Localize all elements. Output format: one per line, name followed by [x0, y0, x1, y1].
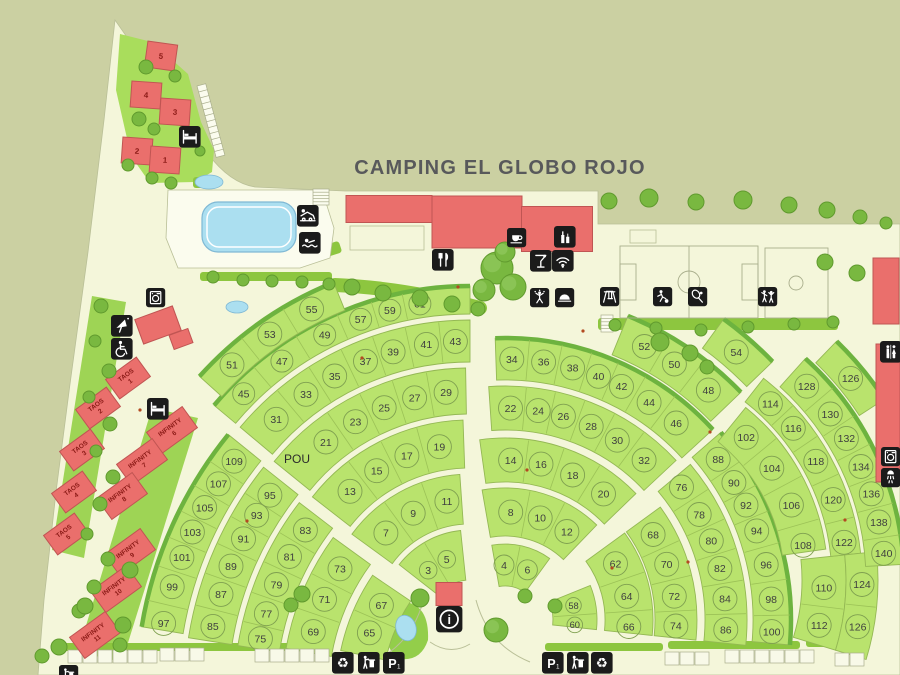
tree: [115, 617, 131, 633]
tree: [101, 552, 115, 566]
svg-text:97: 97: [158, 618, 170, 630]
svg-text:134: 134: [852, 461, 870, 473]
parking-stalls: [160, 648, 204, 661]
tree: [344, 279, 360, 295]
svg-text:19: 19: [434, 442, 446, 454]
tree: [781, 197, 797, 213]
svg-text:22: 22: [505, 403, 517, 415]
svg-text:9: 9: [410, 508, 416, 520]
tree: [375, 285, 391, 301]
marker-dot: [708, 430, 711, 433]
svg-text:73: 73: [334, 564, 346, 576]
svg-text:72: 72: [668, 591, 680, 603]
svg-text:23: 23: [350, 417, 362, 429]
svg-text:92: 92: [740, 500, 752, 512]
svg-text:36: 36: [538, 357, 550, 369]
svg-text:43: 43: [450, 336, 462, 348]
tree: [742, 321, 754, 333]
tree: [601, 193, 617, 209]
waste-corner-icon: [59, 665, 78, 675]
svg-text:17: 17: [401, 451, 413, 463]
svg-text:30: 30: [611, 435, 623, 447]
svg-text:80: 80: [705, 536, 717, 548]
svg-text:7: 7: [383, 528, 389, 540]
svg-text:10: 10: [534, 513, 546, 525]
recycling-east-icon: ♻: [591, 652, 613, 674]
svg-text:55: 55: [306, 304, 318, 316]
svg-text:38: 38: [567, 363, 579, 375]
waste-west-icon: [358, 652, 380, 674]
svg-text:98: 98: [765, 594, 777, 606]
tree: [412, 290, 428, 306]
svg-text:75: 75: [255, 634, 267, 646]
campsite-map: 5311971917151329272523214341393735333161…: [0, 0, 900, 675]
svg-text:26: 26: [558, 411, 570, 423]
tree: [849, 265, 865, 281]
marker-dot: [360, 356, 363, 359]
bungalow-3: 3: [159, 98, 191, 126]
svg-text:102: 102: [737, 432, 755, 444]
football-icon: [653, 287, 672, 306]
svg-text:41: 41: [421, 339, 433, 351]
wc-icon: [880, 341, 900, 363]
svg-text:4: 4: [501, 560, 507, 572]
svg-text:i: i: [447, 613, 451, 627]
svg-text:96: 96: [760, 559, 772, 571]
svg-text:68: 68: [647, 529, 659, 541]
svg-text:32: 32: [638, 455, 650, 467]
svg-text:6: 6: [524, 565, 530, 577]
svg-text:105: 105: [196, 502, 214, 514]
cafe-icon: [507, 228, 526, 247]
svg-text:90: 90: [728, 477, 740, 489]
svg-text:128: 128: [798, 381, 816, 393]
svg-text:70: 70: [661, 559, 673, 571]
parking-east-icon: P1: [542, 652, 564, 674]
pitch-block: [793, 555, 846, 650]
svg-text:13: 13: [344, 486, 356, 498]
tree: [471, 302, 485, 316]
svg-text:126: 126: [849, 621, 867, 633]
svg-text:35: 35: [329, 371, 341, 383]
tree: [113, 638, 127, 652]
svg-text:71: 71: [319, 594, 331, 606]
tree: [90, 445, 102, 457]
svg-text:64: 64: [621, 591, 633, 603]
tree: [609, 319, 621, 331]
svg-text:103: 103: [184, 527, 202, 539]
svg-text:88: 88: [712, 454, 724, 466]
svg-text:28: 28: [585, 421, 597, 433]
tree: [518, 589, 532, 603]
svg-text:♻: ♻: [337, 655, 349, 670]
tree: [35, 649, 49, 663]
waste-east-icon: [567, 652, 589, 674]
svg-text:106: 106: [783, 500, 801, 512]
tree: [122, 562, 138, 578]
tree: [853, 210, 867, 224]
marker-dot: [610, 566, 613, 569]
tree: [548, 599, 562, 613]
information-icon: i: [436, 606, 462, 632]
tree: [146, 172, 158, 184]
tree: [94, 299, 108, 313]
svg-text:42: 42: [616, 381, 628, 393]
recycling-west-icon: ♻: [332, 652, 354, 674]
laundry-icon: [146, 288, 165, 307]
svg-text:89: 89: [225, 561, 237, 573]
svg-text:57: 57: [355, 314, 367, 326]
svg-text:116: 116: [785, 423, 802, 435]
svg-text:39: 39: [387, 347, 399, 359]
svg-text:49: 49: [319, 330, 331, 342]
svg-text:29: 29: [440, 387, 452, 399]
svg-text:P: P: [547, 657, 555, 671]
tree: [500, 274, 526, 300]
marker-dot: [138, 408, 141, 411]
swimming-pool: [202, 202, 296, 252]
svg-text:45: 45: [238, 389, 250, 401]
tree: [640, 189, 658, 207]
svg-text:118: 118: [807, 456, 824, 468]
svg-text:78: 78: [693, 509, 705, 521]
dormitory-icon: [147, 398, 169, 420]
svg-text:25: 25: [378, 403, 390, 415]
svg-text:69: 69: [307, 626, 319, 638]
svg-text:108: 108: [794, 540, 812, 552]
hedge: [545, 643, 663, 651]
svg-text:110: 110: [816, 582, 833, 594]
svg-text:81: 81: [284, 551, 296, 563]
svg-text:44: 44: [643, 397, 655, 409]
tree: [207, 271, 219, 283]
tree: [106, 470, 120, 484]
svg-text:130: 130: [822, 409, 840, 421]
svg-text:99: 99: [166, 582, 178, 594]
svg-text:53: 53: [264, 329, 276, 341]
svg-text:14: 14: [505, 455, 517, 467]
svg-text:27: 27: [409, 393, 421, 405]
svg-text:114: 114: [762, 399, 779, 411]
svg-text:112: 112: [811, 620, 828, 632]
tree: [102, 364, 116, 378]
marker-dot: [843, 518, 846, 521]
restaurant-icon: [432, 249, 454, 271]
tree: [788, 318, 800, 330]
page-title: CAMPING EL GLOBO ROJO: [340, 157, 660, 180]
swimming-icon: [299, 232, 321, 254]
svg-text:46: 46: [670, 418, 682, 430]
tree: [237, 274, 249, 286]
pou-label: POU: [284, 452, 310, 466]
svg-text:140: 140: [875, 548, 893, 560]
tree: [650, 322, 662, 334]
svg-text:107: 107: [210, 479, 228, 491]
tennis-icon: [688, 287, 707, 306]
svg-text:P: P: [388, 657, 396, 671]
svg-text:101: 101: [173, 552, 191, 564]
svg-text:104: 104: [763, 463, 781, 475]
pond: [226, 301, 248, 313]
svg-text:77: 77: [261, 609, 273, 621]
svg-text:136: 136: [863, 489, 881, 501]
bungalow-4: 4: [130, 81, 162, 109]
svg-text:5: 5: [444, 554, 450, 566]
stairs: [313, 189, 329, 205]
tree: [473, 279, 495, 301]
svg-text:47: 47: [276, 356, 288, 368]
tree: [165, 177, 177, 189]
tree: [695, 324, 707, 336]
playground-icon: [600, 287, 619, 306]
svg-text:66: 66: [623, 621, 635, 633]
tree: [296, 276, 308, 288]
svg-text:76: 76: [676, 482, 688, 494]
tree: [132, 112, 146, 126]
tree: [266, 275, 278, 287]
svg-text:122: 122: [835, 537, 853, 549]
parking-west-icon: P1: [383, 652, 405, 674]
pond: [195, 175, 223, 189]
tree: [103, 417, 117, 431]
svg-text:58: 58: [568, 601, 578, 611]
marker-dot: [525, 468, 528, 471]
svg-text:40: 40: [593, 371, 605, 383]
tree: [734, 191, 752, 209]
svg-text:15: 15: [371, 466, 383, 478]
svg-text:93: 93: [251, 510, 263, 522]
svg-text:86: 86: [720, 624, 732, 636]
svg-text:33: 33: [300, 389, 312, 401]
tree: [651, 333, 669, 351]
svg-text:65: 65: [364, 628, 376, 640]
bar-icon: [530, 250, 552, 272]
tree: [51, 639, 67, 655]
svg-text:54: 54: [730, 347, 742, 359]
svg-text:109: 109: [225, 456, 243, 468]
tree: [81, 528, 93, 540]
svg-text:11: 11: [441, 496, 452, 508]
bungalow-1: 1: [149, 146, 181, 174]
parking-stalls: [665, 652, 709, 665]
parking-stalls: [255, 649, 329, 662]
marker-dot: [245, 519, 248, 522]
tree: [819, 202, 835, 218]
bunkhouse-icon: [179, 126, 201, 148]
satellite-tv-icon: [111, 315, 133, 337]
marker-dot: [581, 329, 584, 332]
svg-text:126: 126: [842, 373, 860, 385]
svg-text:20: 20: [598, 489, 610, 501]
svg-text:51: 51: [226, 360, 238, 372]
dance-icon: [758, 287, 777, 306]
laundry-east-icon: [881, 447, 900, 466]
svg-text:59: 59: [384, 305, 396, 317]
tree: [89, 335, 101, 347]
tree: [880, 217, 892, 229]
svg-text:124: 124: [853, 579, 871, 591]
tree: [294, 586, 310, 602]
wheelchair-access-icon: [111, 338, 133, 360]
tree: [827, 316, 839, 328]
svg-text:85: 85: [207, 621, 219, 633]
shower-icon: [881, 468, 900, 487]
svg-text:21: 21: [320, 437, 332, 449]
svg-text:3: 3: [425, 565, 431, 577]
marker-dot: [686, 560, 689, 563]
svg-text:24: 24: [532, 405, 544, 417]
tree: [444, 296, 460, 312]
svg-text:67: 67: [376, 600, 388, 612]
sun-lounger-icon: [297, 205, 319, 227]
main-building-west: [346, 196, 432, 223]
wifi-icon: [552, 250, 574, 272]
tree: [817, 254, 833, 270]
tree: [93, 497, 107, 511]
svg-text:120: 120: [824, 494, 842, 506]
svg-text:52: 52: [639, 341, 651, 353]
tree: [411, 589, 429, 607]
svg-text:60: 60: [570, 620, 580, 630]
svg-text:48: 48: [703, 385, 715, 397]
tree: [484, 618, 508, 642]
tree: [700, 360, 714, 374]
tree: [83, 391, 95, 403]
svg-text:79: 79: [271, 579, 283, 591]
svg-text:31: 31: [270, 414, 282, 426]
svg-text:50: 50: [669, 359, 681, 371]
svg-text:87: 87: [215, 589, 227, 601]
dome-icon: [555, 288, 574, 307]
tree: [139, 60, 153, 74]
svg-text:34: 34: [506, 354, 518, 366]
svg-text:83: 83: [300, 525, 312, 537]
shop-icon: [554, 226, 576, 248]
svg-text:91: 91: [238, 534, 250, 546]
campground-map-page: 5311971917151329272523214341393735333161…: [0, 0, 900, 675]
svg-text:138: 138: [870, 517, 888, 529]
svg-text:18: 18: [567, 470, 579, 482]
svg-text:94: 94: [751, 526, 763, 538]
tree: [148, 123, 160, 135]
svg-text:1: 1: [397, 664, 401, 671]
svg-text:82: 82: [714, 563, 726, 575]
marker-dot: [456, 285, 459, 288]
svg-text:12: 12: [561, 526, 573, 538]
svg-text:8: 8: [508, 507, 514, 519]
svg-text:84: 84: [719, 594, 731, 606]
svg-text:16: 16: [535, 459, 547, 471]
tree: [323, 278, 335, 290]
tree: [688, 194, 704, 210]
tree: [284, 598, 298, 612]
tree: [169, 70, 181, 82]
svg-text:♻: ♻: [596, 655, 608, 670]
tree: [682, 345, 698, 361]
svg-text:74: 74: [670, 621, 682, 633]
tree: [87, 580, 101, 594]
tree: [77, 598, 93, 614]
svg-text:95: 95: [264, 490, 276, 502]
entertainment-icon: [530, 288, 549, 307]
svg-text:1: 1: [556, 664, 560, 671]
reception-building: [436, 583, 462, 606]
northeast-building-1: [873, 258, 899, 324]
svg-text:132: 132: [838, 433, 856, 445]
svg-text:100: 100: [763, 626, 781, 638]
tree: [122, 159, 134, 171]
